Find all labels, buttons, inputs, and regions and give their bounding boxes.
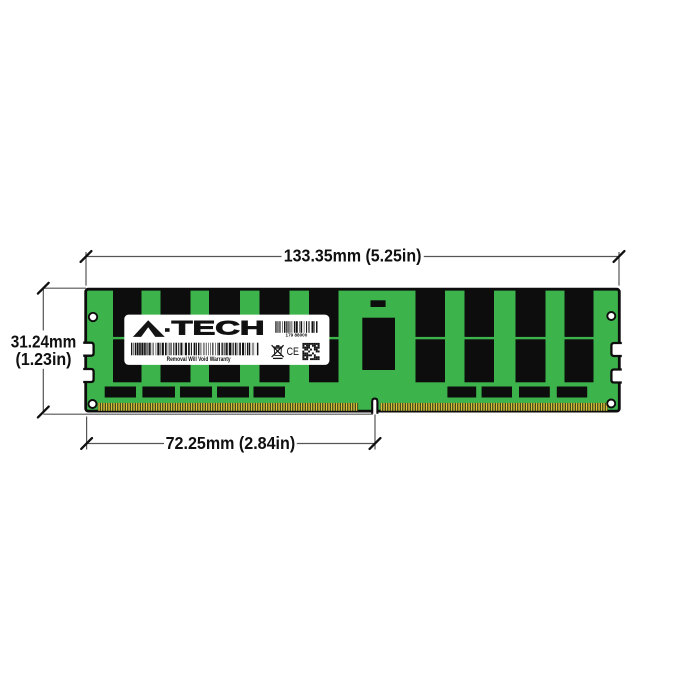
svg-text:Removal Will Void Warranty: Removal Will Void Warranty (167, 356, 231, 363)
svg-text:72.25mm (2.84in): 72.25mm (2.84in) (166, 433, 296, 453)
svg-text:133.35mm (5.25in): 133.35mm (5.25in) (284, 246, 422, 266)
svg-text:(1.23in): (1.23in) (16, 349, 72, 369)
svg-text:TECH: TECH (172, 317, 265, 339)
svg-text:CE: CE (287, 346, 299, 358)
svg-text:179 88000: 179 88000 (286, 332, 308, 337)
